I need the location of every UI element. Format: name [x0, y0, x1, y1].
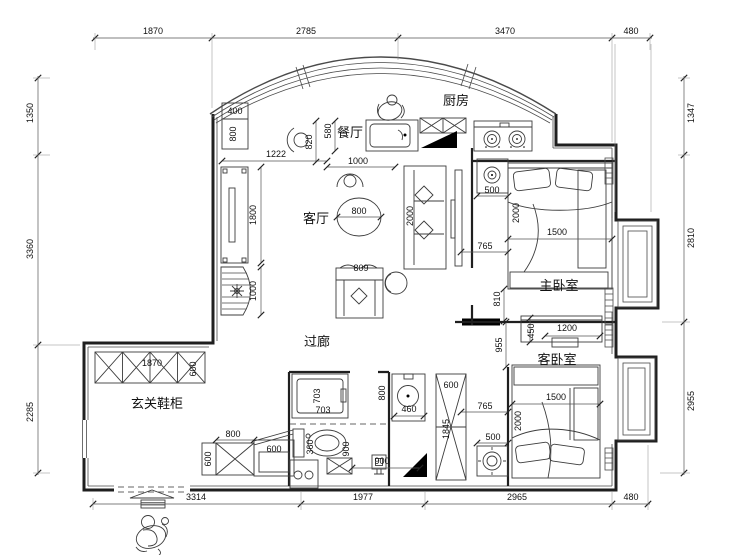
- dim-bath-900v: 900: [341, 441, 351, 456]
- room-label-guest-bedroom: 客卧室: [537, 352, 576, 367]
- dim-shoe-600: 600: [188, 361, 198, 376]
- kitchen-upper-cabinet: [420, 118, 466, 133]
- bay-window-guest: [618, 358, 655, 440]
- dim-tvwall-1800: 1800: [248, 205, 258, 225]
- dim-plant-1000: 1000: [248, 281, 258, 301]
- dim-top-4: 480: [623, 26, 638, 36]
- dim-left-3: 2285: [25, 402, 35, 422]
- dim-entr-800: 800: [225, 429, 240, 439]
- plant-icon: [230, 284, 244, 298]
- person-figure-entry: [133, 516, 168, 555]
- dim-master-810: 810: [492, 291, 502, 306]
- dim-master-1500: 1500: [547, 227, 567, 237]
- room-labels: 厨房 餐厅 客厅 主卧室 客卧室 过廊 玄关鞋柜: [131, 93, 579, 411]
- dim-guest-2000: 2000: [513, 411, 523, 431]
- dim-desk-450: 450: [526, 323, 536, 338]
- armchair: [385, 272, 407, 294]
- dim-shoe-1870: 1870: [142, 358, 162, 368]
- dim-washer-600: 600: [266, 444, 281, 454]
- guest-nightstand-lamp: [477, 446, 508, 476]
- dim-sofa-809: 809: [353, 263, 368, 273]
- dim-cabinet-800: 800: [228, 126, 238, 141]
- dim-master-765: 765: [477, 241, 492, 251]
- dim-guest-955: 955: [494, 337, 504, 352]
- dim-guest-1500: 1500: [546, 392, 566, 402]
- guest-bed: [512, 365, 600, 478]
- dim-shower-703h: 703: [315, 405, 330, 415]
- dim-entr-600v: 600: [203, 451, 213, 466]
- tv-cabinet: [221, 167, 248, 263]
- dim-dining-820: 820: [304, 134, 314, 149]
- floor-plan-drawing: 1870 2785 3470 480 1350 3360 2285 1347 2…: [0, 0, 740, 555]
- dim-right-1: 1347: [686, 103, 696, 123]
- dim-dining-580: 580: [323, 123, 333, 138]
- radiator-guest: [605, 325, 613, 470]
- dim-bottom-1: 3314: [186, 492, 206, 502]
- dim-bottom-3: 2965: [507, 492, 527, 502]
- room-label-dining: 餐厅: [337, 125, 363, 140]
- entry-door-opening: [114, 485, 190, 494]
- dim-basin-460: 460: [401, 404, 416, 414]
- floor-cabinet-x: [327, 458, 352, 474]
- room-label-living: 客厅: [303, 211, 329, 226]
- chair-top: [337, 174, 363, 187]
- dim-right-3: 2955: [686, 391, 696, 411]
- dim-dining-1222: 1222: [266, 149, 286, 159]
- person-figure-kitchen: [376, 95, 404, 123]
- dim-dining-1000: 1000: [348, 156, 368, 166]
- room-label-corridor: 过廊: [304, 334, 330, 349]
- dim-top-2: 2785: [296, 26, 316, 36]
- room-label-master-bedroom: 主卧室: [539, 278, 578, 293]
- gas-stove: [474, 121, 532, 151]
- tv-panel: [451, 170, 462, 266]
- dim-line-right: 1347 2810 2955: [660, 75, 696, 476]
- dim-sofa-2000: 2000: [405, 206, 415, 226]
- plant-shelf: [221, 267, 251, 315]
- dim-cab-600: 600: [443, 380, 458, 390]
- dim-guest-765: 765: [477, 401, 492, 411]
- dim-top-3: 3470: [495, 26, 515, 36]
- dim-master-500: 500: [484, 185, 499, 195]
- dim-right-2: 2810: [686, 228, 696, 248]
- kitchen-sink-counter: [366, 120, 418, 151]
- interior-walls: [289, 148, 616, 486]
- dim-master-2000: 2000: [511, 203, 521, 223]
- room-label-kitchen: 厨房: [443, 93, 469, 108]
- dim-left-1: 1350: [25, 103, 35, 123]
- dim-line-left: 1350 3360 2285: [25, 75, 80, 476]
- dim-bottom-2: 1977: [353, 492, 373, 502]
- dim-cab-1845: 1845: [441, 419, 451, 439]
- dim-shower-703v: 703: [312, 388, 322, 403]
- dim-cabinet-400: 400: [227, 106, 242, 116]
- master-bed: [508, 163, 612, 289]
- dim-guest-500: 500: [485, 432, 500, 442]
- dim-bath-360: 360: [305, 439, 315, 454]
- refrigerator-triangle: [421, 131, 457, 148]
- dim-basin-800: 800: [377, 385, 387, 400]
- room-label-entrance: 玄关鞋柜: [131, 396, 183, 411]
- floor-plan-canvas: 1870 2785 3470 480 1350 3360 2285 1347 2…: [0, 0, 740, 555]
- dim-top-1: 1870: [143, 26, 163, 36]
- left-wall-window: [80, 420, 89, 458]
- dim-desk-1200: 1200: [557, 323, 577, 333]
- arc-bay-window: [210, 57, 556, 123]
- toilet: [293, 429, 346, 457]
- dim-bath-900h: 900: [374, 456, 389, 466]
- bay-window-master: [618, 221, 657, 307]
- dim-left-2: 3360: [25, 239, 35, 259]
- dim-table-800: 800: [351, 206, 366, 216]
- dim-bottom-4: 480: [623, 492, 638, 502]
